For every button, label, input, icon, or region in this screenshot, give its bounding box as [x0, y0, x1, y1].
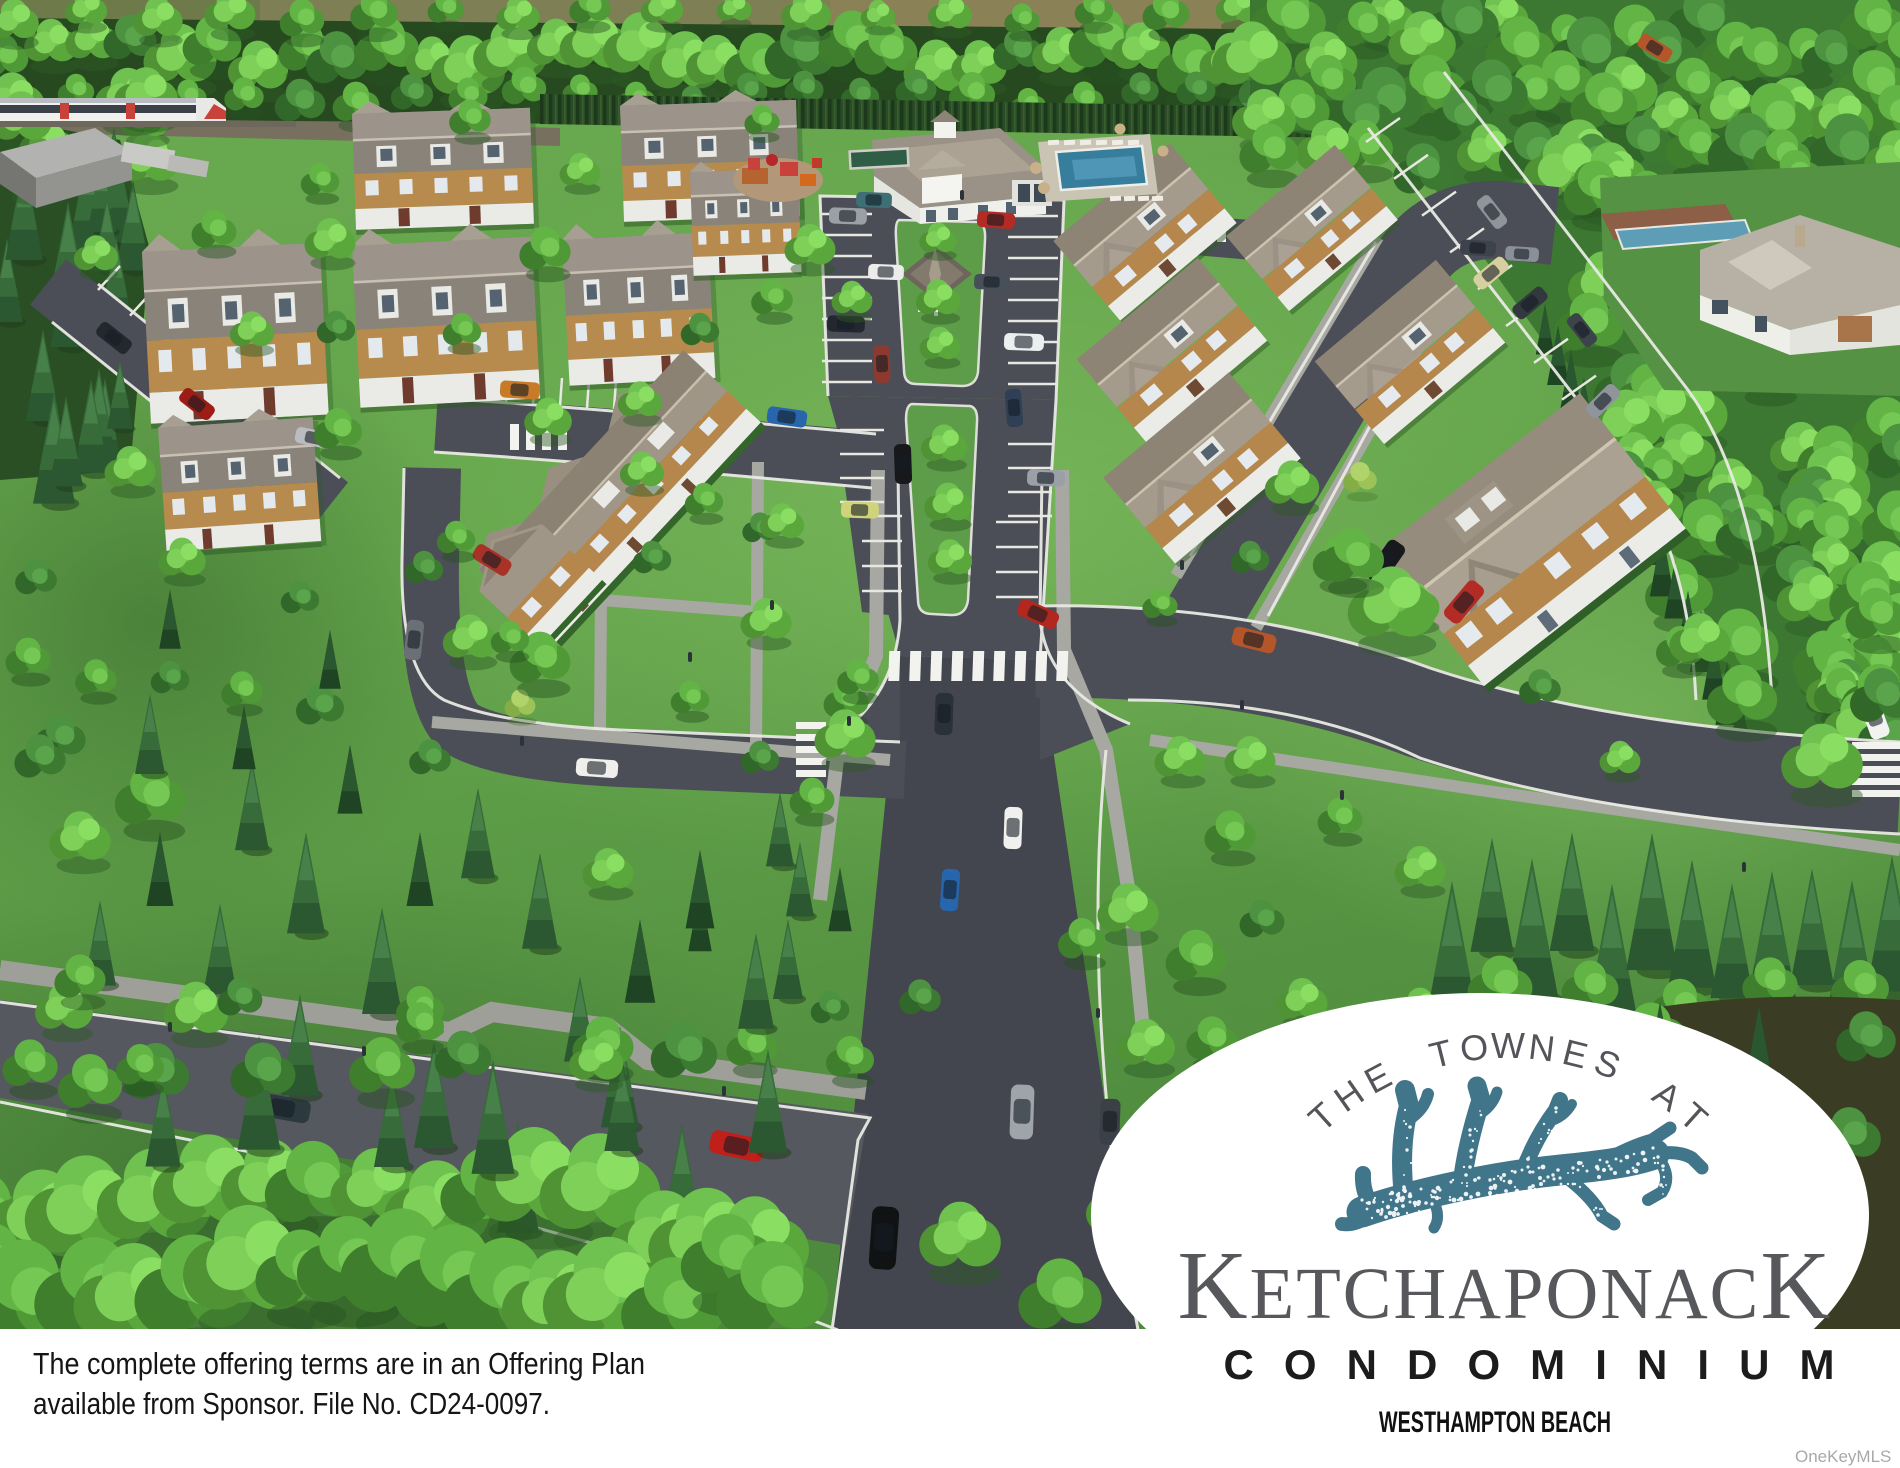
svg-text:OneKeyMLS: OneKeyMLS	[1795, 1447, 1891, 1466]
svg-text:N: N	[1526, 1026, 1557, 1070]
svg-text:The complete offering terms ar: The complete offering terms are in an Of…	[33, 1346, 645, 1381]
svg-text:W: W	[1491, 1025, 1525, 1066]
svg-text:O: O	[1458, 1026, 1491, 1070]
svg-text:available from Sponsor. File N: available from Sponsor. File No. CD24-00…	[33, 1386, 550, 1421]
svg-text:WESTHAMPTON BEACH: WESTHAMPTON BEACH	[1379, 1406, 1611, 1439]
